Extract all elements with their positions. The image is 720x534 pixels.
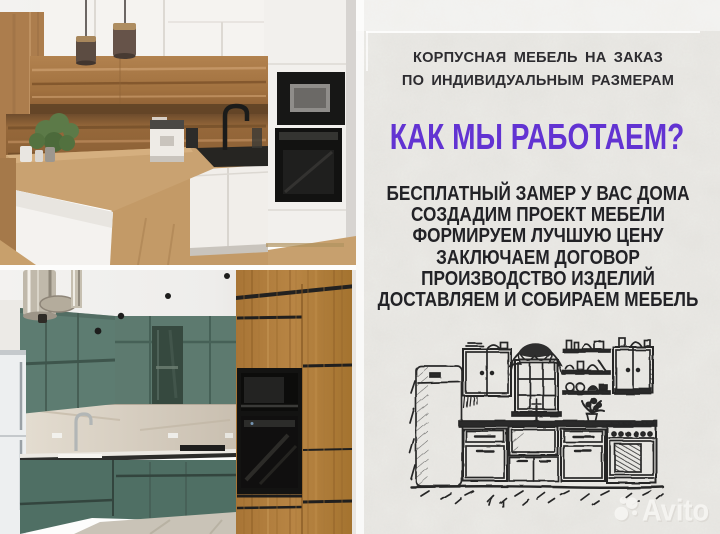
svg-text:Avito: Avito xyxy=(642,494,709,528)
